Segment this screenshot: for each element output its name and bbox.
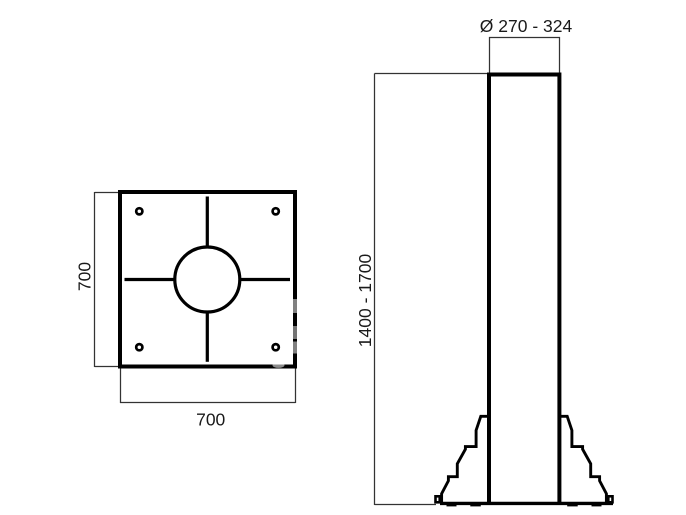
svg-text:1400 - 1700: 1400 - 1700 xyxy=(355,254,375,348)
svg-text:Ø 270 - 324: Ø 270 - 324 xyxy=(480,16,573,36)
svg-text:700: 700 xyxy=(75,262,95,291)
svg-text:700: 700 xyxy=(196,410,225,430)
